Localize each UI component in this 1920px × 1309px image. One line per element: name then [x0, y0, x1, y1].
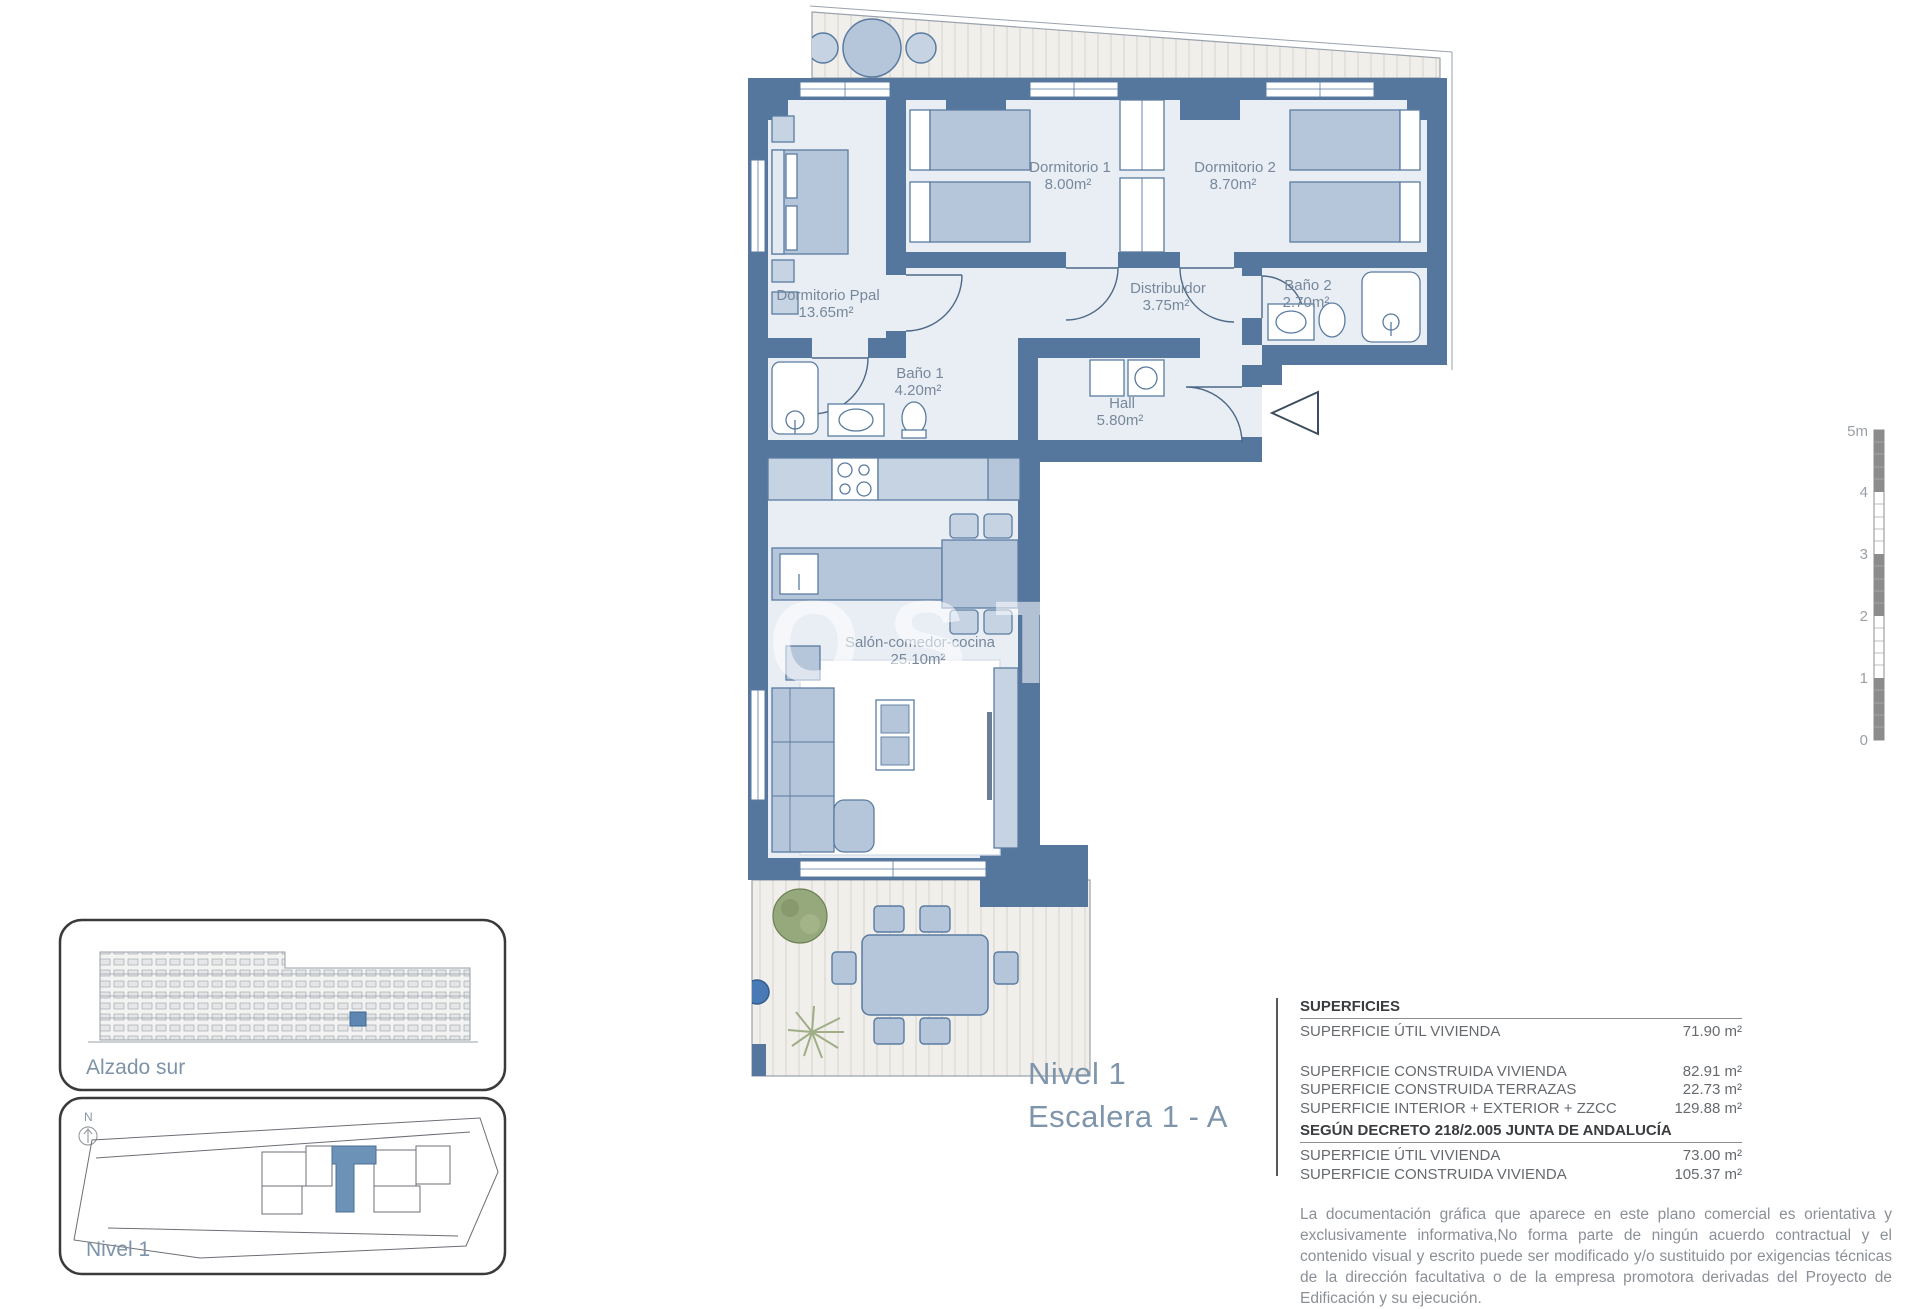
room-label: Baño 2 [1284, 277, 1332, 294]
terrace-round-table [843, 19, 901, 77]
washer-icon [1128, 360, 1164, 396]
window [1030, 82, 1118, 97]
window [800, 82, 890, 97]
row-value: 71.90 m² [1683, 1023, 1742, 1042]
room-label: Hall [1109, 395, 1135, 412]
wall-ppal-bottom-a [748, 338, 812, 358]
row-value: 129.88 m² [1674, 1100, 1742, 1119]
room-label: Dormitorio Ppal [776, 287, 879, 304]
plant-leaf [800, 914, 820, 934]
single-bed-icon [1290, 110, 1400, 170]
kitchen-cabinet [768, 458, 832, 500]
sink-icon [839, 409, 873, 431]
pillow [786, 206, 797, 250]
wall-ppal-bottom-b [868, 338, 906, 358]
scale-label-2: 2 [1860, 608, 1868, 625]
wall-bano2-left [1242, 318, 1262, 345]
row-label: SUPERFICIE CONSTRUIDA VIVIENDA [1300, 1063, 1567, 1082]
sliding-glass-door [800, 861, 986, 877]
wall-entry-jamb-top [1242, 365, 1262, 387]
scale-label-3: 3 [1860, 546, 1868, 563]
scale-bar: 5m 4 3 2 1 0 [1847, 423, 1884, 749]
wall-dorm1-bottom-b [1118, 252, 1164, 268]
scale-segment [1874, 554, 1884, 616]
row-label: SUPERFICIE INTERIOR + EXTERIOR + ZZCC [1300, 1100, 1617, 1119]
terrace-chair-icon [874, 1018, 904, 1044]
siteplan-label: Nivel 1 [86, 1238, 150, 1261]
tv-icon [987, 712, 992, 800]
surfaces-table: SUPERFICIES SUPERFICIE ÚTIL VIVIENDA 71.… [1300, 998, 1742, 1184]
dining-table-icon [942, 540, 1018, 608]
scale-segment [1874, 678, 1884, 740]
wall-salon-right [1018, 440, 1040, 860]
row-label: SUPERFICIE ÚTIL VIVIENDA [1300, 1147, 1500, 1166]
cabinet-icon [1090, 360, 1124, 396]
room-label: Dormitorio 1 [1029, 159, 1111, 176]
plant-leaf [781, 899, 799, 917]
wall-distribuidor-hall [1038, 338, 1200, 358]
terrace-chair-icon [832, 952, 856, 984]
room-area: 8.00m² [1045, 176, 1092, 193]
elevation-label: Alzado sur [86, 1056, 185, 1079]
scale-segment [1874, 430, 1884, 492]
single-bed-icon [1290, 182, 1400, 242]
wall-pillar [1180, 78, 1240, 120]
wall-bano1-right [1018, 338, 1038, 442]
row-label: SUPERFICIE CONSTRUIDA TERRAZAS [1300, 1081, 1576, 1100]
siteplan-inset: N Nivel 1 [60, 1098, 505, 1274]
row-value: 82.91 m² [1683, 1063, 1742, 1082]
wall-dorm1-bottom-a [886, 252, 1066, 268]
plan-title-stair: Escalera 1 - A [1028, 1095, 1228, 1138]
sink-icon [1276, 311, 1306, 333]
wall-bano1-kitchen [748, 440, 1020, 458]
table-row: SUPERFICIE ÚTIL VIVIENDA 73.00 m² [1300, 1147, 1742, 1166]
room-label: Distribuidor [1130, 280, 1206, 297]
chair-icon [950, 610, 978, 634]
wall-ppal-dorm1 [886, 78, 906, 275]
room-area: 2.70m² [1283, 294, 1330, 311]
room-area: 13.65m² [798, 304, 853, 321]
north-label: N [84, 1110, 93, 1124]
chair-icon [984, 610, 1012, 634]
window [751, 160, 765, 252]
table-row: SUPERFICIE CONSTRUIDA TERRAZAS 22.73 m² [1300, 1081, 1742, 1100]
terrace-chair-icon [920, 1018, 950, 1044]
terrace-chair-icon [920, 906, 950, 932]
plan-title: Nivel 1 Escalera 1 - A [1028, 1052, 1228, 1138]
plan-title-level: Nivel 1 [1028, 1052, 1228, 1095]
wall-hall-bottom [1038, 440, 1262, 462]
salon-furniture [772, 646, 1018, 855]
room-label: Salón-comedor-cocina [845, 634, 996, 651]
scale-labels: 5m 4 3 2 1 0 [1847, 423, 1868, 749]
room-label: Baño 1 [896, 365, 944, 382]
plant-icon [773, 889, 827, 943]
single-bed-icon [930, 110, 1030, 170]
surfaces-decree-header: SEGÚN DECRETO 218/2.005 JUNTA DE ANDALUC… [1300, 1122, 1742, 1143]
scale-label-5m: 5m [1847, 423, 1868, 440]
table-row: SUPERFICIE INTERIOR + EXTERIOR + ZZCC 12… [1300, 1100, 1742, 1119]
pillow [786, 154, 797, 198]
pillow [1400, 110, 1420, 170]
room-area: 3.75m² [1143, 297, 1190, 314]
scale-label-4: 4 [1860, 484, 1868, 501]
terrace-blue-dot [745, 980, 769, 1004]
room-area: 25.10m² [890, 651, 945, 668]
table-gap [1300, 1042, 1742, 1063]
table-row: SUPERFICIE ÚTIL VIVIENDA 71.90 m² [1300, 1023, 1742, 1042]
wall-bano2-left-jamb [1242, 268, 1262, 276]
window [1266, 82, 1374, 97]
hob-icon [832, 458, 878, 500]
row-value: 22.73 m² [1683, 1081, 1742, 1100]
chair-icon [950, 514, 978, 538]
wall-bano2-bottom [1262, 345, 1447, 365]
terrace-chair-icon [906, 33, 936, 63]
bed-headboard [772, 150, 784, 254]
wall-pillar [748, 78, 788, 120]
room-area: 8.70m² [1210, 176, 1257, 193]
pillow [910, 110, 930, 170]
wall-dorm2-jamb [1164, 252, 1180, 268]
row-label: SUPERFICIE ÚTIL VIVIENDA [1300, 1023, 1500, 1042]
toilet-tank [902, 430, 926, 438]
wardrobe-icon [772, 116, 794, 142]
nightstand-icon [772, 260, 794, 282]
terrace-chair-icon [808, 33, 838, 63]
room-area: 4.20m² [895, 382, 942, 399]
tv-unit-icon [994, 668, 1018, 848]
row-label: SUPERFICIE CONSTRUIDA VIVIENDA [1300, 1166, 1567, 1185]
table-row: SUPERFICIE CONSTRUIDA VIVIENDA 105.37 m² [1300, 1166, 1742, 1185]
toilet-icon [902, 402, 926, 434]
wall-entry-step [1262, 345, 1282, 385]
terrace-wall-stub [752, 1044, 766, 1076]
room-area: 5.80m² [1097, 412, 1144, 429]
terrace-chair-icon [874, 906, 904, 932]
row-value: 73.00 m² [1683, 1147, 1742, 1166]
elevation-inset: Alzado sur [60, 920, 505, 1090]
highlighted-unit [350, 1012, 366, 1026]
scale-label-1: 1 [1860, 670, 1868, 687]
page: { "plan": { "title_line1": "Nivel 1", "t… [0, 0, 1920, 1280]
disclaimer-text: La documentación gráfica que aparece en … [1300, 1204, 1892, 1309]
terrace-chair-icon [994, 952, 1018, 984]
row-value: 105.37 m² [1674, 1166, 1742, 1185]
scale-label-0: 0 [1860, 732, 1868, 749]
fridge-icon [988, 458, 1020, 500]
armchair-icon [786, 646, 820, 680]
pillow [910, 182, 930, 242]
divider-line [1276, 998, 1278, 1176]
wall-right [1427, 78, 1447, 365]
terrace-dining-table [862, 935, 988, 1015]
room-label: Dormitorio 2 [1194, 159, 1276, 176]
sofa-chaise [834, 800, 874, 852]
wall-dorm2-bottom [1234, 252, 1427, 268]
surfaces-header: SUPERFICIES [1300, 998, 1742, 1019]
single-bed-icon [930, 182, 1030, 242]
table-row: SUPERFICIE CONSTRUIDA VIVIENDA 82.91 m² [1300, 1063, 1742, 1082]
window [751, 690, 765, 800]
sofa-icon [772, 688, 834, 852]
chair-icon [984, 514, 1012, 538]
pillow [1400, 182, 1420, 242]
entrance-arrow-icon [1272, 392, 1318, 434]
